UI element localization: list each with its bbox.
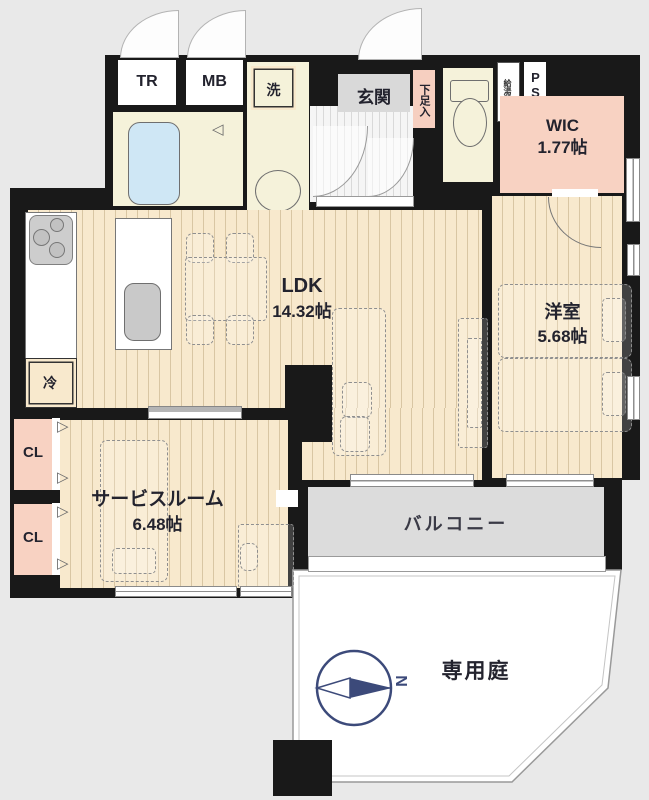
window: [115, 586, 237, 597]
washing-machine-label: 洗: [251, 80, 296, 100]
burner-icon: [49, 242, 65, 258]
closet-upper-label: CL: [14, 444, 52, 461]
window: [627, 244, 640, 276]
ldk-name: LDK: [281, 275, 322, 297]
service-room-area: 6.48帖: [132, 515, 182, 534]
bath-door-icon: ◁: [212, 122, 224, 137]
window: [350, 474, 474, 487]
window: [506, 474, 594, 487]
burner-icon: [33, 229, 50, 246]
closet-lower-label: CL: [14, 529, 52, 546]
garden-wall-block: [273, 740, 332, 796]
sofa-cushion: [340, 416, 370, 452]
pillow: [602, 372, 626, 416]
wic-name: WIC: [546, 116, 579, 135]
sofa-cushion: [342, 382, 372, 418]
tr-door-arc-icon: [120, 10, 179, 58]
wall-segment: [285, 365, 332, 442]
western-room-name: 洋室: [545, 302, 581, 322]
washbasin: [255, 170, 301, 212]
floor-plan: TR MB 洗 ◁ 玄関 下足入 給湯器 PS WIC 1.77帖 洋室 5.6…: [0, 0, 649, 800]
chair: [186, 315, 214, 345]
folding-door-icon: ▷: [57, 504, 69, 519]
ldk-area: 14.32帖: [272, 302, 332, 321]
tv: [467, 338, 482, 428]
western-room-area: 5.68帖: [537, 327, 587, 346]
private-garden-label: 専用庭: [416, 655, 536, 685]
wic-label: WIC 1.77帖: [505, 115, 620, 159]
sliding-door: [148, 406, 242, 419]
wall-window-box: [276, 490, 298, 507]
compass-north-label: N: [391, 671, 409, 691]
refrigerator-label: 冷: [25, 373, 75, 393]
service-room-label: サービスルーム 6.48帖: [75, 487, 240, 537]
shoe-cabinet-label: 下足入: [416, 74, 432, 126]
sink: [124, 283, 161, 341]
balcony-label: バルコニー: [376, 510, 536, 536]
bathtub: [128, 122, 180, 205]
mb-door-arc-icon: [187, 10, 246, 58]
window: [627, 376, 640, 420]
stove: [29, 215, 73, 265]
folding-door-icon: ▷: [57, 470, 69, 485]
window: [240, 586, 292, 597]
service-room-name: サービスルーム: [91, 489, 223, 510]
pillow: [112, 548, 156, 574]
trunk-room-label: TR: [118, 73, 176, 91]
western-room-label: 洋室 5.68帖: [505, 300, 620, 349]
meter-box-label: MB: [186, 73, 243, 91]
toilet-bowl: [453, 98, 487, 147]
folding-door-icon: ▷: [57, 556, 69, 571]
folding-door-icon: ▷: [57, 419, 69, 434]
entrance-door-arc-icon: [358, 8, 422, 60]
chair: [240, 543, 258, 571]
entrance-step: [316, 196, 414, 207]
burner-icon: [50, 218, 64, 232]
balcony-edge: [308, 556, 606, 572]
window: [626, 158, 640, 222]
wic-area: 1.77帖: [537, 138, 587, 157]
entrance-label: 玄関: [338, 83, 410, 108]
wic-door-opening: [552, 189, 598, 197]
